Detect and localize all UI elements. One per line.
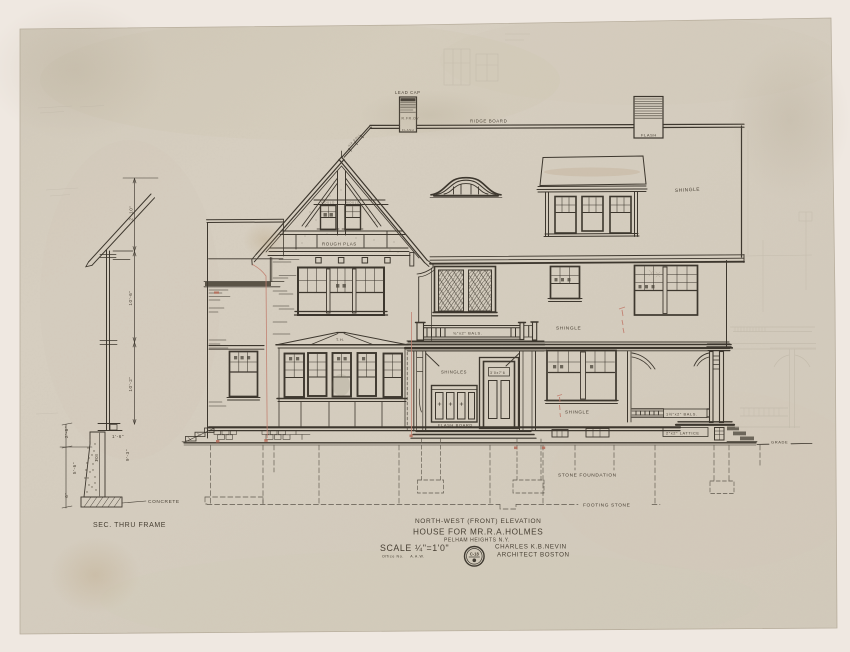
svg-text:SHINGLE: SHINGLE — [556, 326, 581, 332]
svg-text:5'-6": 5'-6" — [72, 462, 77, 474]
svg-text:6": 6" — [64, 492, 69, 497]
svg-text:CONCRETE: CONCRETE — [148, 499, 180, 505]
svg-text:2'-10": 2'-10" — [129, 205, 134, 220]
svg-text:3'0x7'6: 3'0x7'6 — [490, 371, 505, 375]
svg-text:NORTH-WEST (FRONT) ELEVATION: NORTH-WEST (FRONT) ELEVATION — [415, 518, 541, 525]
svg-text:ROUGH PLAS: ROUGH PLAS — [322, 242, 357, 247]
svg-text:FOOTING STONE: FOOTING STONE — [583, 503, 630, 509]
svg-text:T.H.: T.H. — [336, 338, 345, 342]
svg-text:GRADE: GRADE — [771, 440, 788, 445]
svg-text:2'-6": 2'-6" — [64, 426, 69, 438]
svg-text:9'-3": 9'-3" — [125, 449, 130, 461]
svg-text:MOULD: MOULD — [321, 201, 335, 205]
svg-text:CHARLES K.B.NEVIN: CHARLES K.B.NEVIN — [495, 544, 567, 551]
svg-text:¾"x2" BALS.: ¾"x2" BALS. — [453, 331, 482, 336]
svg-text:HOUSE FOR MR.R.A.HOLMES: HOUSE FOR MR.R.A.HOLMES — [413, 528, 543, 537]
svg-text:10'-2": 10'-2" — [128, 376, 133, 391]
svg-text:1½"x2" BALS.: 1½"x2" BALS. — [666, 411, 698, 416]
svg-text:ARCHITECT BOSTON: ARCHITECT BOSTON — [497, 552, 570, 559]
svg-text:SHINGLE: SHINGLE — [565, 410, 589, 415]
svg-text:SCALE ¼"=1'0": SCALE ¼"=1'0" — [380, 543, 449, 553]
svg-text:2"x2" LATTICE: 2"x2" LATTICE — [666, 430, 700, 435]
svg-text:MOULD: MOULD — [346, 201, 360, 205]
svg-text:Office No. A.A.W.: Office No. A.A.W. — [382, 555, 425, 559]
svg-text:FLASH: FLASH — [641, 133, 657, 138]
svg-text:10'-6": 10'-6" — [128, 290, 133, 305]
svg-text:SEC. THRU FRAME: SEC. THRU FRAME — [93, 522, 166, 529]
svg-text:SHINGLES: SHINGLES — [441, 370, 467, 375]
svg-text:C-18: C-18 — [470, 551, 480, 556]
svg-text:FLASH BOARD: FLASH BOARD — [438, 423, 473, 428]
svg-text:1'-6": 1'-6" — [112, 434, 124, 439]
svg-text:STONE FOUNDATION: STONE FOUNDATION — [558, 473, 617, 479]
